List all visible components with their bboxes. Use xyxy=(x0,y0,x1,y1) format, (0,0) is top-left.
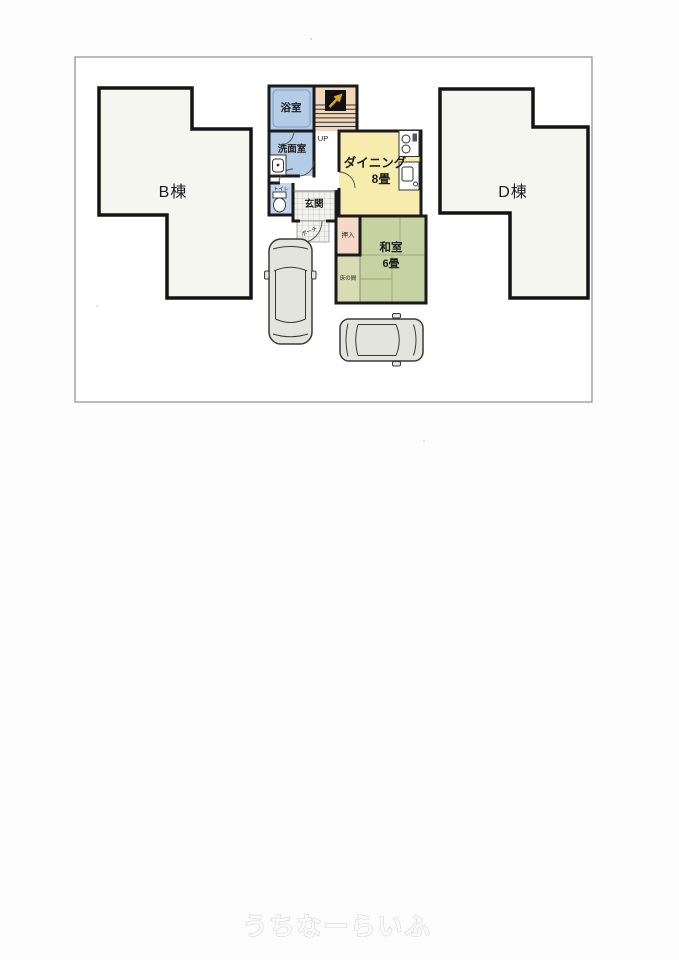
washroom-label: 洗面室 xyxy=(278,143,307,155)
building-d-label: D棟 xyxy=(498,183,528,201)
building-b-label: B棟 xyxy=(159,183,188,201)
north-arrow-icon xyxy=(325,90,346,111)
toilet-icon xyxy=(273,192,286,212)
car-top-view-icon xyxy=(265,239,317,344)
toilet-label: トイレ xyxy=(273,187,289,193)
dining-label: ダイニング xyxy=(344,155,407,170)
stairs-up-label: UP xyxy=(318,134,328,143)
stove-icon xyxy=(399,131,419,157)
tokonoma-label: 床の間 xyxy=(340,274,357,282)
bath-label: 浴室 xyxy=(281,101,302,114)
dining-size-label: 8畳 xyxy=(372,172,391,186)
washitsu-label: 和室 xyxy=(380,240,403,254)
car-top-view-icon xyxy=(340,314,423,367)
floorplan-drawing: B棟 D棟 xyxy=(0,0,679,960)
genkan-label: 玄関 xyxy=(304,198,323,210)
oshiire-label: 押入 xyxy=(342,230,356,239)
watermark-logo: うちなーらいふ xyxy=(242,913,431,941)
floorplan-page: B棟 D棟 xyxy=(0,0,679,960)
washbasin-icon xyxy=(270,155,286,175)
washitsu-size-label: 6畳 xyxy=(382,257,399,270)
